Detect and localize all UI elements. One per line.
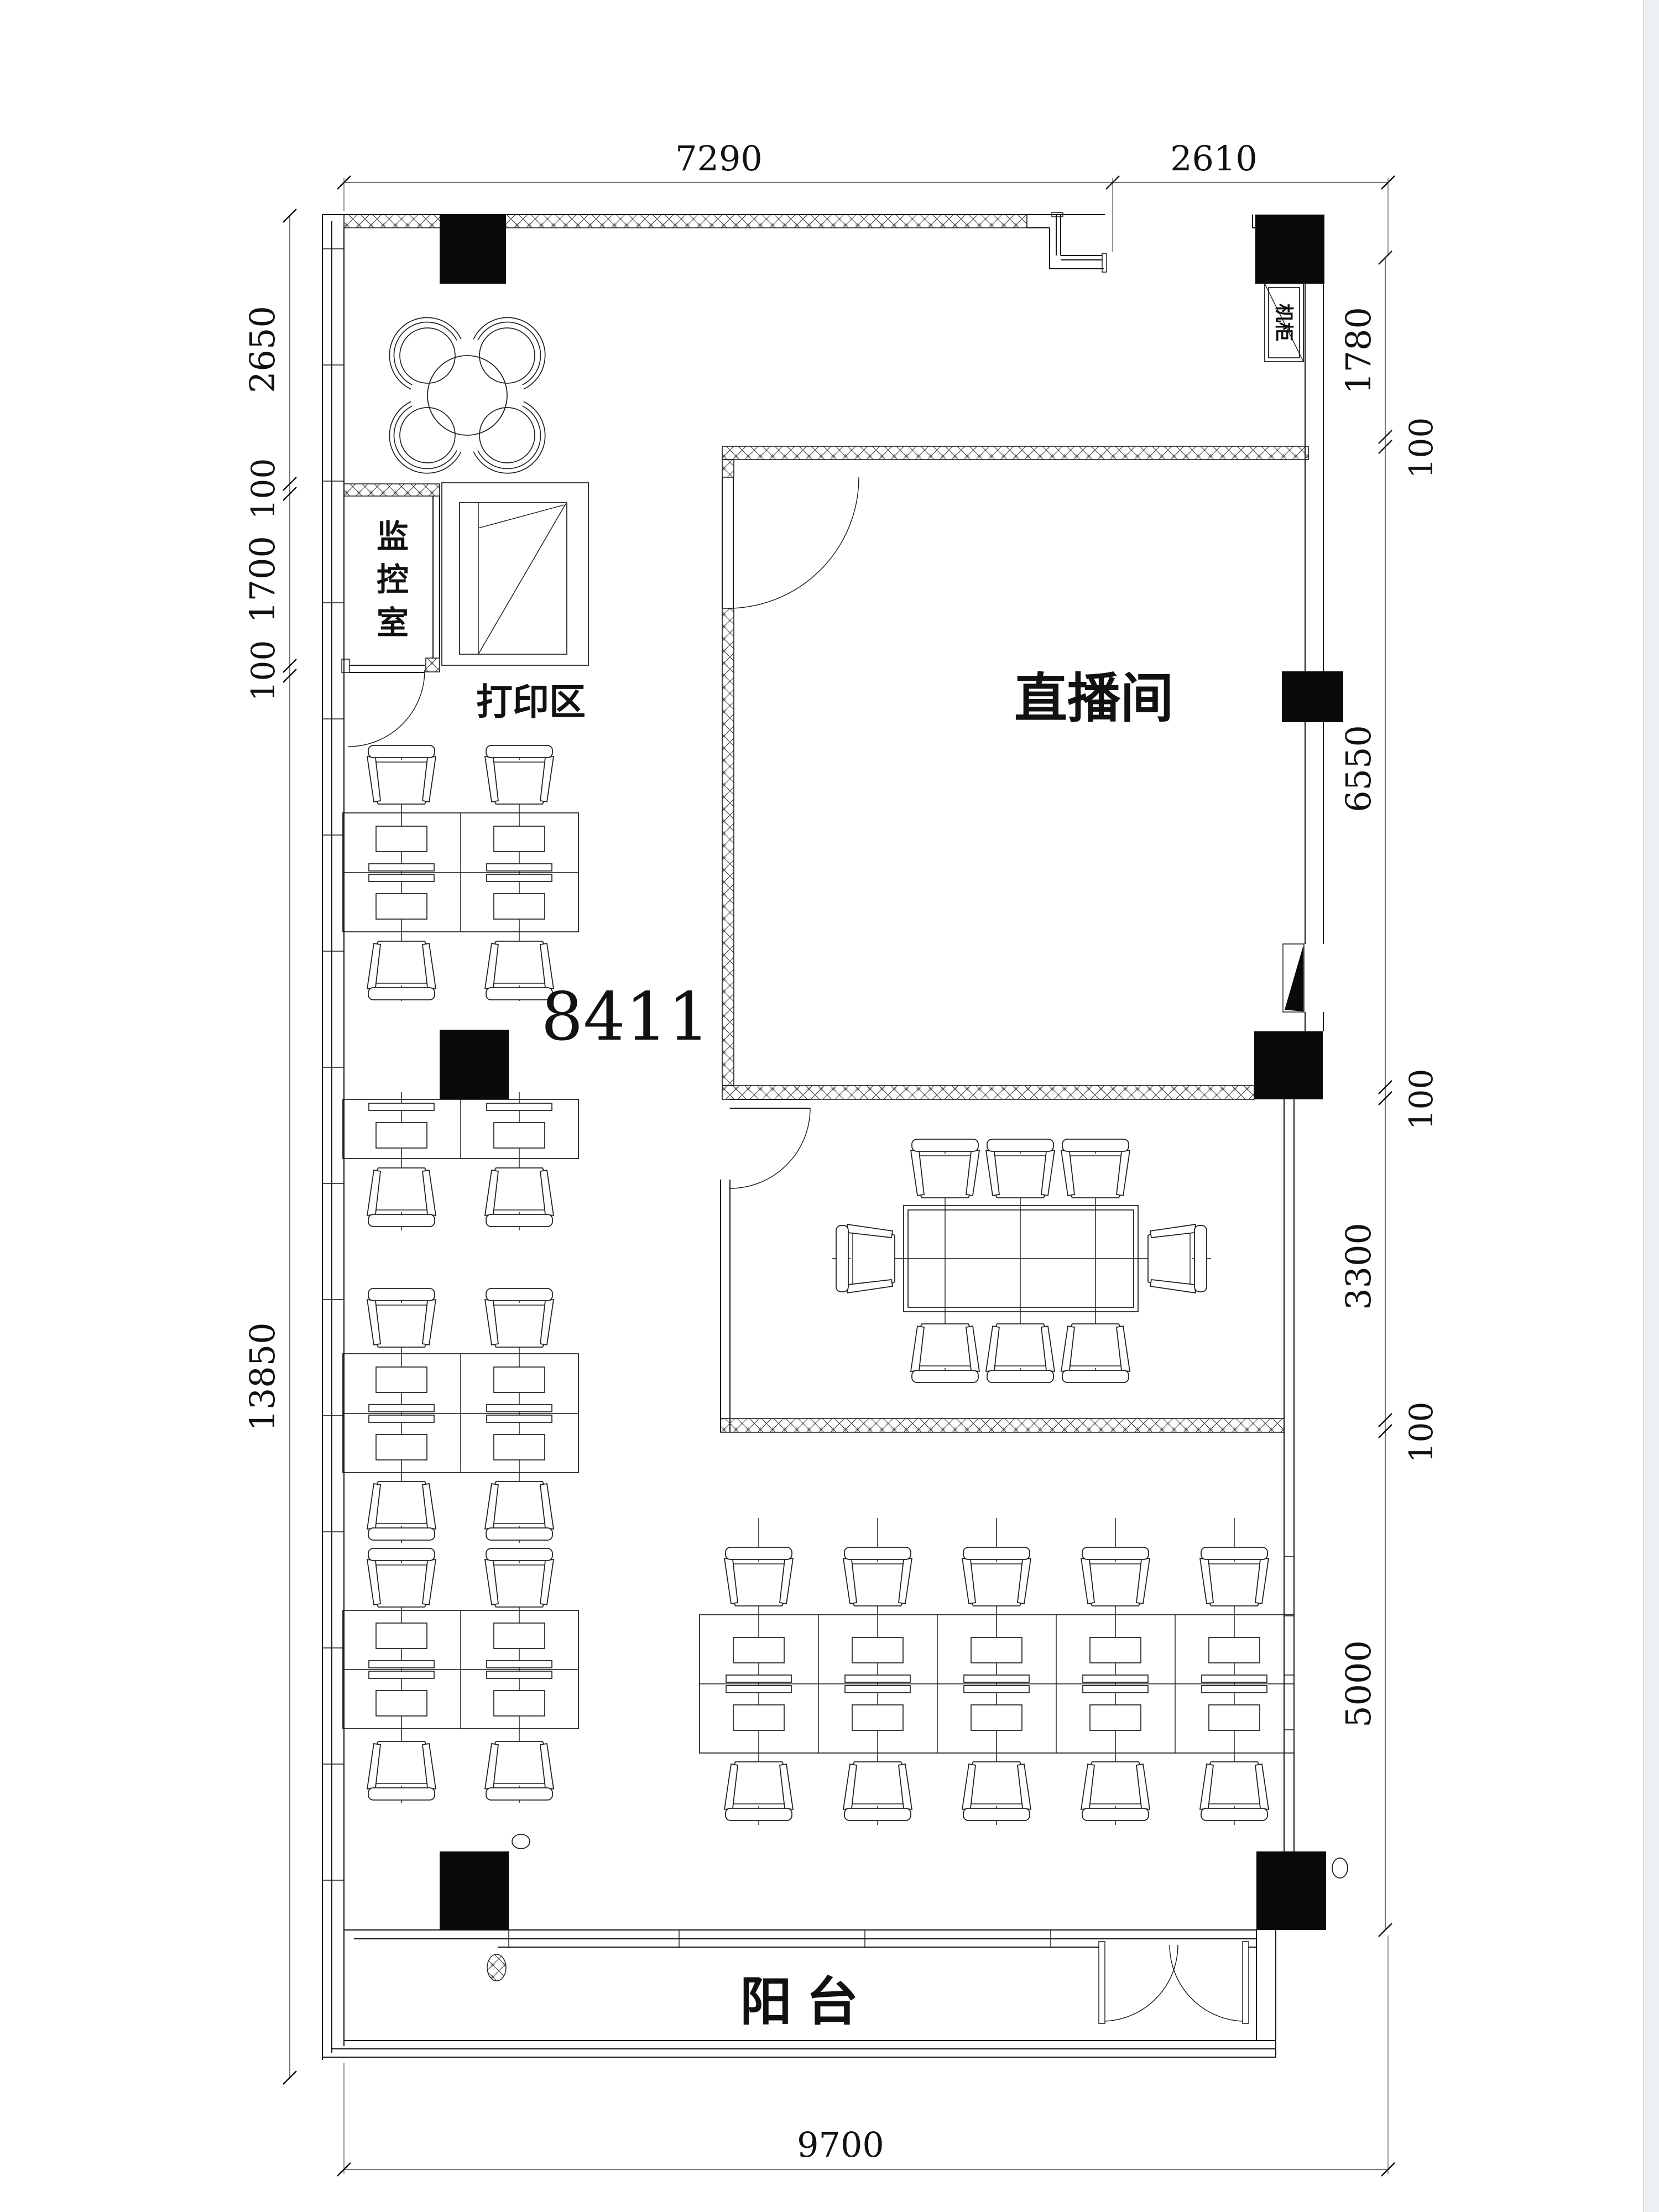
- dim-bottom-9700: 9700: [797, 2125, 884, 2165]
- dim-right-1780: 1780: [1338, 307, 1379, 394]
- dim-right-100b: 100: [1402, 1069, 1440, 1130]
- dim-right-5000: 5000: [1338, 1640, 1379, 1728]
- monitor-room-label-char-1: 监: [377, 519, 409, 555]
- column-right-mid: [1282, 671, 1343, 722]
- balcony-label: 阳 台: [740, 1973, 858, 2031]
- monitor-room-label-char-2: 控: [377, 562, 409, 598]
- live-room-label: 直播间: [1014, 669, 1173, 728]
- dim-left-13850: 13850: [242, 1322, 283, 1431]
- print-area-label: 打印区: [476, 681, 586, 722]
- floor-plan-page: 机柜: [0, 0, 1659, 2212]
- floor-plan-drawing: 机柜: [0, 0, 1659, 2212]
- dim-left-100a: 100: [244, 458, 282, 520]
- dim-right-3300: 3300: [1338, 1223, 1379, 1310]
- cabinet-label: 机柜: [1273, 304, 1294, 341]
- balcony-drain: [487, 1954, 506, 1981]
- dim-right-100a: 100: [1402, 418, 1440, 479]
- dim-top-2610: 2610: [1170, 138, 1258, 179]
- column-bottom-right: [1256, 1851, 1326, 1930]
- dim-left-1700: 1700: [242, 536, 283, 623]
- column-left-mid: [440, 1030, 509, 1099]
- monitor-room-label-char-3: 室: [377, 605, 409, 641]
- column-bottom-left: [440, 1851, 509, 1930]
- server-cabinet: 机柜: [1265, 284, 1303, 362]
- column-top-left: [440, 215, 506, 284]
- page-edge-strip: [1644, 0, 1659, 2212]
- dim-top-7290: 7290: [675, 138, 763, 179]
- dim-right-6550: 6550: [1338, 725, 1379, 812]
- unit-number: 8411: [541, 979, 709, 1056]
- column-top-right: [1255, 215, 1324, 284]
- dim-left-2650: 2650: [242, 306, 283, 393]
- dim-right-100c: 100: [1402, 1402, 1440, 1463]
- dim-left-100b: 100: [244, 640, 282, 702]
- column-right-meeting: [1254, 1031, 1323, 1099]
